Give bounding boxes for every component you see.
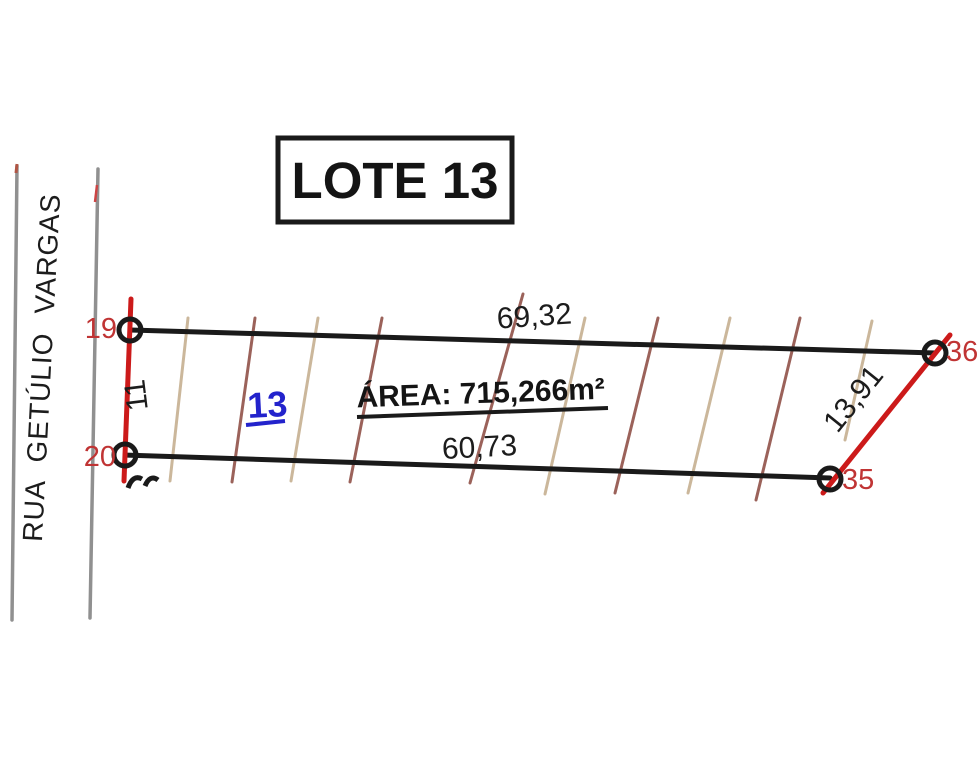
vertex-label-20: 20 [84, 441, 116, 473]
lot-number-annotation: 13 [246, 383, 288, 426]
clipped-mark [128, 478, 158, 488]
survey-sheet: RUA GETÚLIO VARGAS [0, 0, 979, 768]
hatch-line [291, 318, 318, 481]
dimension-left-side: 11 [118, 378, 155, 413]
vertex-label-19: 19 [85, 313, 117, 345]
title-box: LOTE 13 [278, 138, 512, 222]
dimension-back: 60,73 [441, 429, 518, 466]
hatch-line [756, 318, 800, 500]
vertex-label-35: 35 [842, 464, 874, 496]
street-edge-right-line [90, 169, 98, 618]
area-annotation: ÁREA: 715,266m² [356, 372, 608, 417]
street-name-label: RUA GETÚLIO VARGAS [17, 193, 66, 543]
title-label: LOTE 13 [292, 152, 499, 209]
dimension-front: 69,32 [496, 297, 573, 335]
vertex-label-36: 36 [946, 336, 978, 368]
survey-drawing: RUA GETÚLIO VARGAS [0, 0, 979, 768]
street-edge-left-tick [16, 164, 17, 173]
street-edge-left-line [12, 166, 17, 620]
